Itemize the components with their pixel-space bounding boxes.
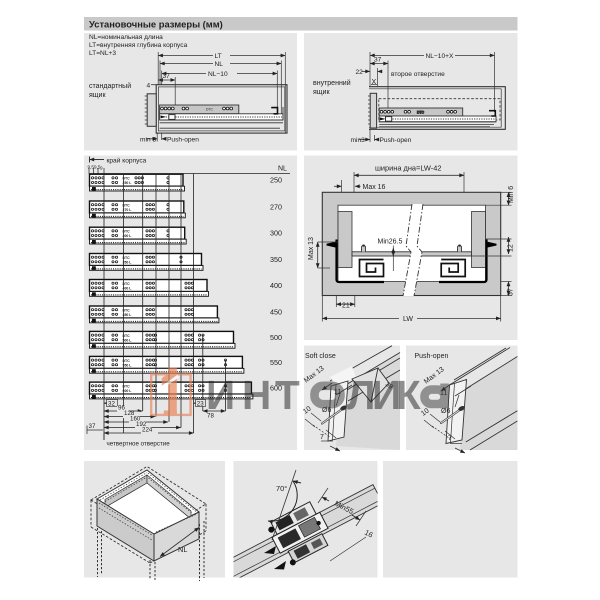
svg-text:DTC: DTC bbox=[206, 108, 214, 112]
svg-text:37: 37 bbox=[374, 57, 382, 64]
svg-text:300: 300 bbox=[270, 229, 282, 238]
svg-text:7: 7 bbox=[320, 434, 324, 441]
svg-text:край корпуса: край корпуса bbox=[107, 157, 147, 165]
svg-text:LW: LW bbox=[403, 316, 413, 323]
svg-text:500: 500 bbox=[270, 333, 282, 342]
svg-text:9: 9 bbox=[100, 166, 103, 171]
svg-text:min 3: min 3 bbox=[140, 136, 156, 143]
svg-text:270 L: 270 L bbox=[123, 208, 133, 212]
svg-text:NL−10: NL−10 bbox=[208, 71, 228, 78]
svg-text:23: 23 bbox=[197, 401, 204, 408]
svg-text:ящик: ящик bbox=[89, 92, 106, 99]
svg-text:400: 400 bbox=[270, 281, 282, 290]
svg-text:400 L: 400 L bbox=[123, 287, 133, 291]
svg-text:стандартный: стандартный bbox=[89, 82, 131, 90]
svg-text:550: 550 bbox=[270, 358, 282, 367]
svg-text:Max 13: Max 13 bbox=[308, 237, 315, 260]
svg-text:12: 12 bbox=[508, 244, 515, 252]
svg-text:min3: min3 bbox=[351, 137, 366, 144]
svg-text:внутренний: внутренний bbox=[313, 79, 351, 87]
svg-text:ящик: ящик bbox=[313, 89, 330, 96]
svg-text:32: 32 bbox=[108, 401, 115, 408]
svg-text:LT: LT bbox=[215, 53, 222, 60]
svg-text:37: 37 bbox=[163, 73, 171, 80]
svg-text:550 L: 550 L bbox=[123, 363, 133, 367]
svg-text:Soft close: Soft close bbox=[305, 353, 336, 360]
svg-text:LT=NL+3: LT=NL+3 bbox=[89, 50, 116, 57]
svg-text:250 L: 250 L bbox=[123, 181, 133, 185]
svg-text:250: 250 bbox=[270, 176, 282, 185]
svg-text:Push-open: Push-open bbox=[167, 136, 199, 143]
svg-text:350: 350 bbox=[270, 255, 282, 264]
svg-text:NL: NL bbox=[215, 61, 224, 68]
svg-text:Min26.5: Min26.5 bbox=[378, 239, 403, 246]
svg-text:270: 270 bbox=[270, 203, 282, 212]
svg-text:500 L: 500 L bbox=[123, 338, 133, 342]
svg-text:Установочные размеры (мм): Установочные размеры (мм) bbox=[89, 18, 223, 29]
svg-text:NL=номинальная длина: NL=номинальная длина bbox=[89, 34, 163, 41]
svg-text:Max 16: Max 16 bbox=[363, 184, 386, 191]
svg-text:224: 224 bbox=[142, 427, 153, 434]
svg-text:21: 21 bbox=[342, 303, 350, 310]
svg-text:NL: NL bbox=[178, 545, 187, 554]
svg-text:ширина дна=LW-42: ширина дна=LW-42 bbox=[375, 164, 441, 173]
svg-text:450 L: 450 L bbox=[123, 313, 133, 317]
svg-text:LT=внутренняя глубина корпуса: LT=внутренняя глубина корпуса bbox=[89, 41, 188, 49]
svg-text:Min 6: Min 6 bbox=[508, 186, 515, 203]
svg-text:Ø6: Ø6 bbox=[441, 408, 450, 415]
svg-text:37: 37 bbox=[89, 423, 96, 430]
svg-text:Push-open: Push-open bbox=[380, 137, 412, 144]
svg-text:450: 450 bbox=[270, 308, 282, 317]
svg-text:22: 22 bbox=[356, 69, 364, 76]
svg-text:NL−10+X: NL−10+X bbox=[426, 53, 454, 60]
svg-text:второе отверстие: второе отверстие bbox=[391, 71, 445, 78]
svg-text:600 L: 600 L bbox=[123, 389, 133, 393]
svg-text:X: X bbox=[372, 79, 377, 86]
svg-text:NL: NL bbox=[278, 166, 287, 173]
svg-text:37: 37 bbox=[508, 288, 515, 296]
svg-text:350 L: 350 L bbox=[123, 261, 133, 265]
svg-text:DTC: DTC bbox=[417, 111, 425, 115]
svg-text:4: 4 bbox=[147, 83, 151, 90]
svg-text:Push-open: Push-open bbox=[415, 353, 449, 360]
svg-text:70°: 70° bbox=[276, 484, 287, 493]
svg-text:четвертное отверстие: четвертное отверстие bbox=[107, 441, 171, 448]
svg-text:300 L: 300 L bbox=[123, 234, 133, 238]
svg-text:7: 7 bbox=[448, 435, 452, 442]
